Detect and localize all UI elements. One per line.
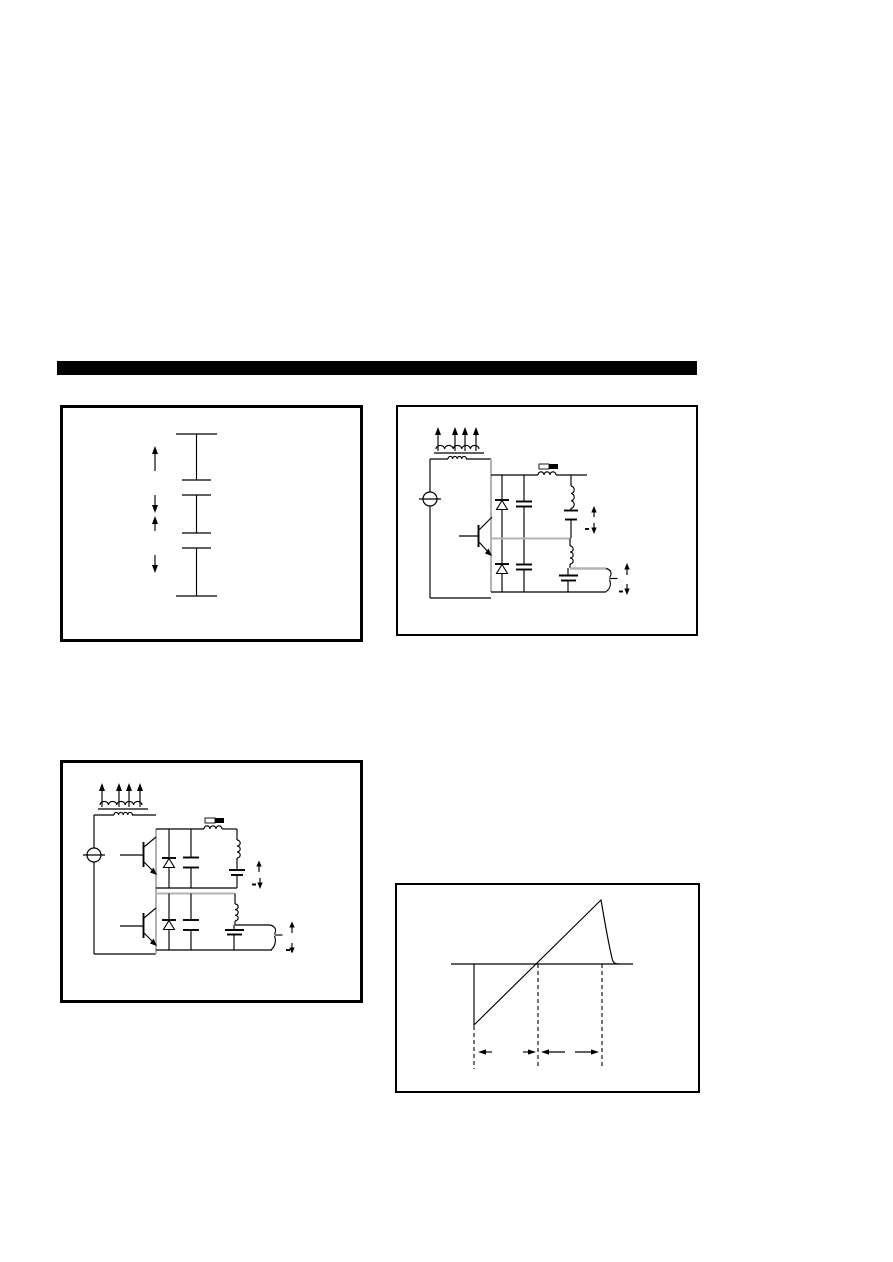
voltage-source-symbol <box>419 492 441 506</box>
output-branch-upper <box>564 475 578 538</box>
sawtooth-waveform-drawing <box>397 885 698 1091</box>
capacitor-lower <box>183 894 199 951</box>
polarity-arrows-lower <box>619 563 630 595</box>
polarity-arrows-upper <box>252 861 263 890</box>
retrace-capacitor-upper <box>516 475 532 538</box>
radiation-arrows <box>435 427 479 451</box>
label-chip-black <box>215 818 224 823</box>
transformer-symbol <box>430 445 491 459</box>
direction-arrows <box>152 446 158 573</box>
dashed-time-markers <box>474 964 602 1069</box>
linearity-coil-symbol <box>204 818 224 829</box>
figure-capacitor-stack <box>60 405 363 642</box>
figure-sawtooth-waveform <box>395 883 700 1093</box>
damper-diode-upper <box>495 475 509 538</box>
capacitor-stack-drawing <box>63 408 360 639</box>
transistor-lower-symbol <box>120 908 157 946</box>
output-connector-brace <box>606 569 618 593</box>
capacitor-upper <box>183 829 199 888</box>
figure-dual-transistor-circuit <box>60 760 363 1003</box>
transistor-symbol <box>459 517 492 556</box>
figure-single-transistor-circuit <box>396 405 698 636</box>
output-branch-upper <box>229 829 245 888</box>
section-header-bar <box>57 361 697 375</box>
transformer-symbol <box>94 801 156 815</box>
label-chip-white <box>539 464 549 469</box>
diode-lower <box>162 894 176 951</box>
dual-transistor-circuit-drawing <box>63 763 360 1000</box>
transistor-upper-symbol <box>120 837 157 875</box>
diode-upper <box>162 829 176 888</box>
retrace-capacitor-lower <box>516 538 532 592</box>
output-branch-lower <box>225 894 270 951</box>
voltage-source-symbol <box>83 848 105 862</box>
polarity-arrows-lower <box>286 922 295 954</box>
plate-stack-symbol <box>176 434 217 596</box>
document-page <box>0 0 893 1262</box>
waveform-trace <box>474 900 619 1025</box>
label-chip-white <box>205 818 215 823</box>
linearity-coil-symbol <box>538 464 558 475</box>
radiation-arrows <box>99 783 143 807</box>
damper-diode-lower <box>495 538 509 592</box>
single-transistor-circuit-drawing <box>398 407 696 634</box>
polarity-arrows-upper <box>585 506 597 534</box>
output-branch-lower <box>559 539 606 593</box>
output-connector-brace <box>270 925 283 950</box>
label-chip-black <box>549 464 558 469</box>
